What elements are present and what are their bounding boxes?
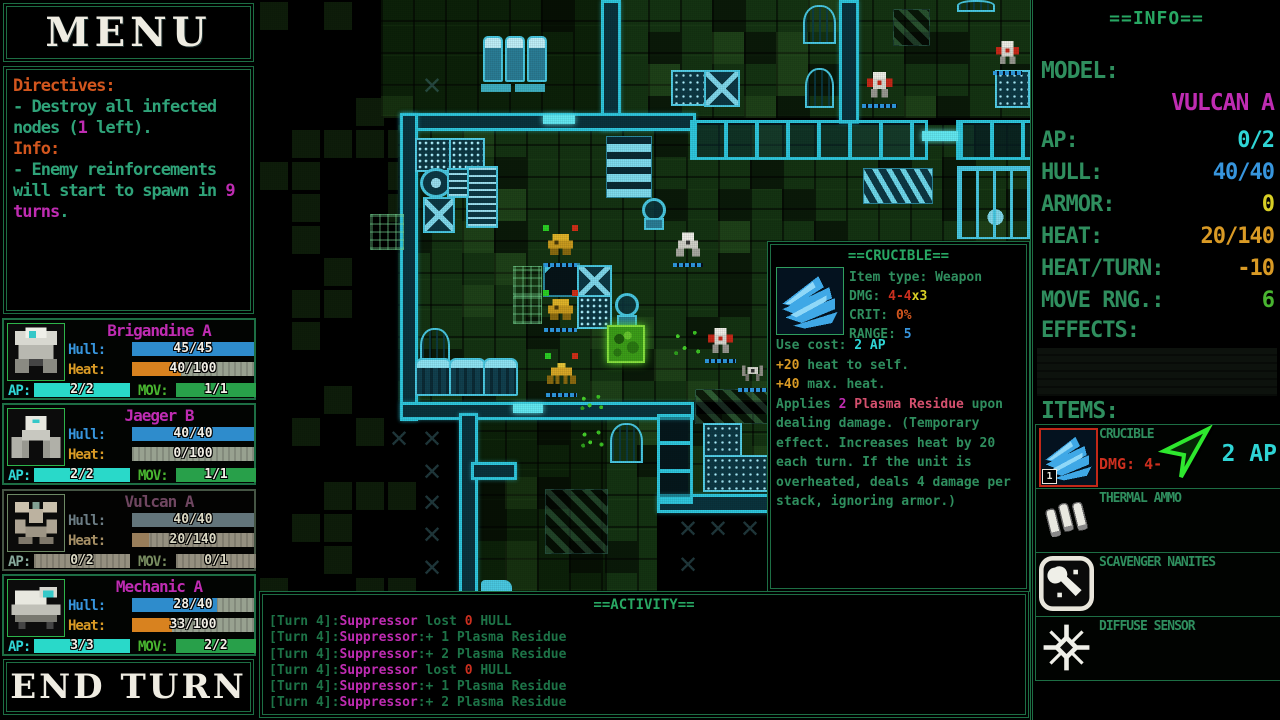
light-tile: [744, 96, 776, 118]
map-unit-player-mech-1[interactable]: [543, 230, 578, 263]
dark-tile: [494, 157, 526, 189]
infection-speckles: [579, 428, 607, 450]
map-door[interactable]: [543, 115, 575, 124]
item-dmg: DMG: 4-: [1099, 455, 1162, 473]
item-label: SCAVENGER NANITES: [1099, 555, 1215, 570]
machine-bus: [415, 358, 452, 396]
unit-mov-bar: 2/2: [176, 639, 256, 653]
end-turn-label: END TURN: [7, 663, 250, 711]
floor-patch: [292, 194, 320, 222]
dark-tile: [744, 32, 776, 64]
machine-x: [577, 265, 612, 297]
machine-bar: [481, 84, 511, 92]
cursor-icon: [1158, 425, 1214, 483]
stat-row-heatturn: HEAT/TURN:-10: [1041, 256, 1274, 284]
map-wall: [400, 402, 694, 420]
unit-hull-bar: 28/40: [132, 598, 254, 612]
unit-heat-label: Heat:: [68, 618, 105, 634]
dark-tile: [541, 0, 573, 32]
unit-ap-label: AP:: [8, 468, 30, 484]
dark-tile: [605, 541, 637, 573]
unit-ap-bar: 2/2: [34, 383, 130, 397]
unit-ap-value: 0/2: [34, 554, 130, 568]
alert-pip: [572, 225, 578, 231]
unit-heat-label: Heat:: [68, 447, 105, 463]
unit-portrait: [7, 323, 65, 381]
unit-heat-bar: 33/100: [132, 618, 254, 632]
floor-patch: [324, 386, 352, 414]
unit-hp-bar: [993, 71, 1022, 75]
unit-heat-bar: 20/140: [132, 533, 254, 547]
floor-patch: [324, 2, 352, 30]
stat-row-armor: ARMOR:0: [1041, 192, 1274, 220]
dark-tile: [936, 32, 968, 64]
unit-hull-value: 40/40: [132, 513, 254, 527]
stat-value: 0/2: [1237, 128, 1274, 153]
machine-tank: [483, 36, 503, 82]
item-diffuse-sensor[interactable]: DIFFUSE SENSOR: [1035, 616, 1280, 681]
unit-hp-bar: [705, 359, 736, 363]
end-turn-button[interactable]: END TURN: [3, 659, 254, 715]
unit-ap-label: AP:: [8, 383, 30, 399]
x-mark: ✕: [419, 554, 445, 580]
floor-patch: [324, 482, 352, 510]
unit-hp-bar: [738, 388, 767, 392]
map-fence: [690, 120, 928, 160]
map-unit-enemy-3[interactable]: [737, 360, 768, 388]
x-mark: ✕: [419, 458, 445, 484]
floor-patch: [356, 418, 384, 446]
machine-gantry: [957, 166, 1030, 239]
x-mark: ✕: [705, 515, 731, 541]
unit-card-brigandine-a[interactable]: Brigandine AHull:45/45Heat:40/100AP:2/2M…: [2, 318, 256, 400]
machine-rack: [447, 168, 469, 198]
unit-hull-label: Hull:: [68, 598, 105, 614]
machine-tank: [505, 36, 525, 82]
x-mark: ✕: [419, 425, 445, 451]
hazard-tile: [695, 389, 770, 424]
floor-patch: [324, 130, 352, 158]
stat-label: HEAT/TURN:: [1041, 256, 1163, 281]
x-mark: ✕: [419, 72, 445, 98]
unit-mov-label: MOV:: [138, 468, 168, 484]
stat-label: HULL:: [1041, 160, 1102, 185]
x-mark: ✕: [675, 515, 701, 541]
machine-rack: [466, 166, 498, 228]
unit-hull-value: 28/40: [132, 598, 254, 612]
machine-arch: [957, 0, 995, 12]
info-panel-title: ==INFO==: [1033, 8, 1280, 29]
light-tile: [904, 96, 936, 118]
floor-patch: [292, 322, 320, 350]
map-wall: [459, 413, 478, 598]
ready-pip: [543, 225, 549, 231]
x-mark: ✕: [737, 515, 763, 541]
model-label: MODEL:: [1041, 58, 1118, 84]
unit-ap-bar: 0/2: [34, 554, 130, 568]
dark-tile: [494, 221, 526, 253]
stat-value: 0: [1262, 192, 1274, 217]
unit-mov-bar: 1/1: [176, 468, 256, 482]
item-thermal-ammo[interactable]: THERMAL AMMO: [1035, 488, 1280, 553]
machine-x: [704, 70, 740, 107]
item-label: THERMAL AMMO: [1099, 491, 1181, 506]
floor-patch: [292, 418, 320, 446]
x-mark: ✕: [675, 551, 701, 577]
ammo-icon: [1039, 492, 1094, 547]
claw-icon: 1: [1039, 428, 1098, 487]
x-mark: ✕: [386, 425, 412, 451]
dark-tile: [718, 189, 750, 221]
stat-value: 6: [1262, 288, 1274, 313]
stat-label: MOVE RNG.:: [1041, 288, 1163, 313]
map-unit-enemy-4[interactable]: [861, 70, 898, 104]
floor-patch: [324, 546, 352, 574]
map-wall: [471, 462, 517, 480]
machine-crate: [703, 455, 772, 492]
machine-crate: [703, 423, 742, 458]
unit-hp-bar: [546, 393, 577, 397]
activity-log-title: ==ACTIVITY==: [263, 597, 1025, 613]
unit-mov-value: 1/1: [176, 468, 256, 482]
unit-card-mechanic-a[interactable]: Mechanic AHull:28/40Heat:33/100AP:3/3MOV…: [2, 574, 256, 656]
unit-ap-bar: 3/3: [34, 639, 130, 653]
light-tile: [462, 285, 494, 317]
unit-mov-value: 2/2: [176, 639, 256, 653]
effects-box: [1037, 348, 1277, 396]
tooltip-stats: Item type: WeaponDMG: 4-4x3CRIT: 0%RANGE…: [849, 268, 982, 344]
stat-row-moverng: MOVE RNG.:6: [1041, 288, 1274, 316]
infected-node[interactable]: [607, 325, 645, 363]
info-sidebar: ==INFO== MODEL: VULCAN A AP:0/2HULL:40/4…: [1030, 0, 1280, 720]
unit-heat-bar: 40/100: [132, 362, 254, 376]
unit-mov-bar: 1/1: [176, 383, 256, 397]
light-tile: [505, 477, 537, 509]
unit-hull-value: 40/40: [132, 427, 254, 441]
unit-card-vulcan-a[interactable]: Vulcan AHull:40/40Heat:20/140AP:0/2MOV:0…: [2, 489, 256, 571]
machine-tank: [527, 36, 547, 82]
unit-ap-bar: 2/2: [34, 468, 130, 482]
dark-tile: [648, 32, 680, 64]
unit-mov-value: 1/1: [176, 383, 256, 397]
floor-patch: [292, 290, 320, 318]
stat-row-hull: HULL:40/40: [1041, 160, 1274, 188]
map-door[interactable]: [513, 404, 543, 413]
stat-row-ap: AP:0/2: [1041, 128, 1274, 156]
map-unit-enemy-1[interactable]: [672, 230, 704, 263]
wrench-icon: [1039, 556, 1094, 611]
map-unit-enemy-2[interactable]: [704, 326, 737, 359]
map-fence: [657, 414, 693, 504]
machine-crate: [671, 70, 706, 106]
stat-value: -10: [1237, 256, 1274, 281]
item-tooltip-crucible: ==CRUCIBLE== Item type: WeaponDMG: 4-4x3…: [767, 241, 1030, 592]
floor-patch: [356, 482, 384, 510]
unit-mov-label: MOV:: [138, 639, 168, 655]
left-sidebar: MENU Directives:- Destroy all infectedno…: [0, 0, 258, 720]
map-unit-enemy-5[interactable]: [992, 38, 1023, 71]
light-tile: [776, 64, 808, 96]
unit-mov-value: 0/1: [176, 554, 256, 568]
machine-hash: [513, 266, 542, 296]
machine-hash: [513, 296, 542, 324]
stat-value: 40/40: [1213, 160, 1274, 185]
unit-heat-value: 40/100: [132, 362, 254, 376]
floor-patch: [260, 2, 288, 30]
floor-patch: [292, 226, 320, 254]
light-tile: [712, 32, 744, 64]
machine-turret: [613, 293, 641, 327]
unit-hull-bar: 45/45: [132, 342, 254, 356]
unit-ap-value: 3/3: [34, 639, 130, 653]
map-wall: [839, 0, 859, 124]
unit-hull-label: Hull:: [68, 342, 105, 358]
map-wall: [601, 0, 621, 131]
x-mark: ✕: [419, 489, 445, 515]
unit-name: Mechanic A: [66, 577, 252, 596]
machine-turret: [640, 198, 668, 230]
map-unit-player-mech-2[interactable]: [543, 295, 578, 328]
machine-crate: [995, 70, 1030, 108]
effects-label: EFFECTS:: [1041, 318, 1139, 343]
dark-tile: [712, 0, 744, 32]
machine-arch: [805, 68, 834, 108]
directives-panel: Directives:- Destroy all infectednodes (…: [3, 66, 254, 314]
alert-pip: [572, 353, 578, 359]
unit-mov-label: MOV:: [138, 554, 168, 570]
dark-tile: [776, 96, 808, 118]
floor-patch: [356, 98, 384, 126]
unit-hull-value: 45/45: [132, 342, 254, 356]
unit-ap-label: AP:: [8, 639, 30, 655]
map-unit-player-mech-3[interactable]: [545, 358, 578, 393]
item-label: CRUCIBLE: [1099, 427, 1154, 442]
ready-pip: [545, 353, 551, 359]
unit-portrait: [7, 408, 65, 466]
dark-tile: [936, 96, 968, 118]
light-tile: [505, 541, 537, 573]
crucible-claw-icon: [776, 267, 844, 335]
dark-tile: [750, 157, 782, 189]
dark-tile: [782, 189, 814, 221]
machine-dot: [577, 295, 612, 329]
stat-row-heat: HEAT:20/140: [1041, 224, 1274, 252]
item-scavenger-nanites[interactable]: SCAVENGER NANITES: [1035, 552, 1280, 617]
dark-tile: [718, 253, 750, 285]
hazard-tile: [893, 9, 930, 46]
map-fence: [956, 120, 1030, 160]
unit-ap-value: 2/2: [34, 468, 130, 482]
unit-hp-bar: [544, 263, 577, 267]
light-tile: [494, 189, 526, 221]
dark-tile: [718, 285, 750, 317]
stat-label: AP:: [1041, 128, 1078, 153]
unit-heat-value: 0/100: [132, 447, 254, 461]
machine-hash: [370, 214, 404, 250]
machine-chips: [606, 136, 652, 198]
unit-mov-bar: 0/1: [176, 554, 256, 568]
unit-heat-bar: 0/100: [132, 447, 254, 461]
tooltip-description: Use cost: 2 AP+20 heat to self.+40 max. …: [776, 336, 1011, 512]
machine-arch: [803, 5, 836, 44]
unit-hull-label: Hull:: [68, 513, 105, 529]
item-slot-number: 1: [1042, 469, 1057, 484]
menu-button[interactable]: MENU: [3, 3, 254, 62]
alert-pip: [572, 290, 578, 296]
unit-name: Brigandine A: [66, 321, 252, 340]
game-screen: ✕✕✕✕✕✕✕✕✕✕✕ ==CRUCIBLE== Item type: Weap…: [0, 0, 1280, 720]
floor-patch: [260, 162, 288, 190]
stat-value: 20/140: [1201, 224, 1274, 249]
activity-log: ==ACTIVITY== [Turn 4]:Suppressor lost 0 …: [259, 591, 1029, 718]
item-ap-cost: 2 AP: [1222, 441, 1277, 467]
light-tile: [718, 221, 750, 253]
floor-patch: [292, 130, 320, 158]
unit-name: Jaeger B: [66, 406, 252, 425]
unit-portrait: [7, 579, 65, 637]
machine-dot: [415, 138, 452, 172]
floor-patch: [324, 258, 352, 286]
sensor-icon: [1039, 620, 1094, 675]
floor-patch: [292, 162, 320, 190]
floor-patch: [388, 482, 416, 510]
activity-log-lines: [Turn 4]:Suppressor lost 0 HULL[Turn 4]:…: [269, 614, 566, 712]
floor-patch: [324, 514, 352, 542]
floor-patch: [324, 290, 352, 318]
machine-bus: [483, 358, 518, 396]
map-door[interactable]: [922, 131, 958, 141]
machine-bus: [449, 358, 486, 396]
unit-hull-label: Hull:: [68, 427, 105, 443]
unit-hull-bar: 40/40: [132, 427, 254, 441]
floor-patch: [356, 130, 384, 158]
unit-name: Vulcan A: [66, 492, 252, 511]
stat-label: ARMOR:: [1041, 192, 1114, 217]
items-label: ITEMS:: [1041, 398, 1118, 424]
floor-patch: [292, 514, 320, 542]
unit-hp-bar: [673, 263, 703, 267]
unit-hull-bar: 40/40: [132, 513, 254, 527]
stat-label: HEAT:: [1041, 224, 1102, 249]
item-crucible[interactable]: 1CRUCIBLEDMG: 4-2 AP: [1035, 424, 1280, 489]
infection-speckles: [671, 326, 705, 360]
unit-heat-label: Heat:: [68, 362, 105, 378]
tooltip-title: ==CRUCIBLE==: [771, 248, 1026, 264]
machine-barrels: [863, 168, 933, 204]
machine-arch: [610, 423, 643, 463]
hazard-tile: [545, 489, 608, 554]
unit-portrait: [7, 494, 65, 552]
ready-pip: [543, 290, 549, 296]
unit-mov-label: MOV:: [138, 383, 168, 399]
infection-speckles: [578, 393, 607, 412]
machine-x: [423, 197, 455, 233]
unit-card-jaeger-b[interactable]: Jaeger BHull:40/40Heat:0/100AP:2/2MOV:1/…: [2, 403, 256, 485]
unit-heat-label: Heat:: [68, 533, 105, 549]
unit-hp-bar: [862, 104, 897, 108]
unit-ap-label: AP:: [8, 554, 30, 570]
unit-heat-value: 20/140: [132, 533, 254, 547]
item-label: DIFFUSE SENSOR: [1099, 619, 1195, 634]
menu-button-label: MENU: [7, 7, 250, 59]
model-value: VULCAN A: [1171, 90, 1274, 116]
unit-hp-bar: [544, 328, 577, 332]
x-mark: ✕: [419, 521, 445, 547]
unit-ap-value: 2/2: [34, 383, 130, 397]
unit-heat-value: 33/100: [132, 618, 254, 632]
machine-bar: [515, 84, 545, 92]
